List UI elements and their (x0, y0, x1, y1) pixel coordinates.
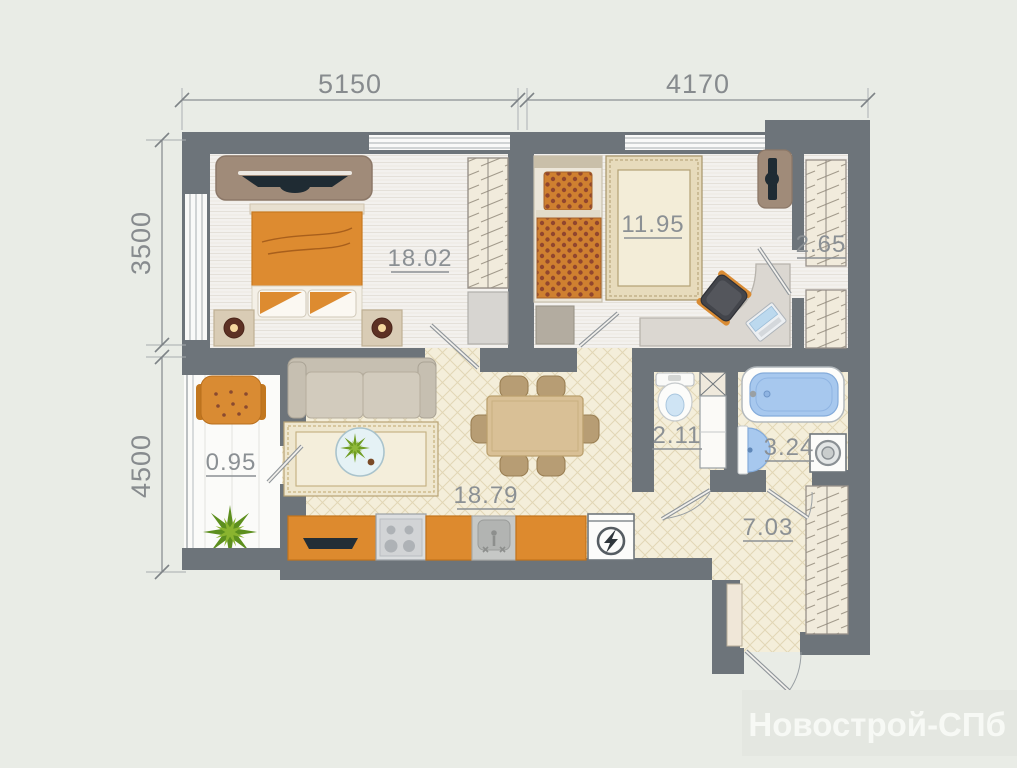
wall-tv (758, 150, 792, 208)
wall-middle-b (480, 348, 577, 372)
dim-top-right: 4170 (666, 69, 730, 99)
room-label-hallway: 7.03 (743, 514, 794, 541)
floor-plan: 0.95 (0, 0, 1017, 768)
counter (516, 516, 586, 560)
kitchen-row (288, 514, 634, 560)
nightstand-right (362, 310, 402, 346)
wall-top-mid (510, 132, 625, 154)
vent-shaft (700, 372, 726, 396)
pillow (258, 290, 306, 317)
sofa (288, 358, 436, 418)
single-bed (534, 156, 602, 302)
bedside-cabinet (536, 306, 574, 344)
wardrobe (468, 158, 508, 288)
dim-top-left: 5150 (318, 69, 382, 99)
nightstand-left (214, 310, 254, 346)
bathtub (742, 367, 844, 422)
wall-top-right (765, 120, 848, 154)
room-label-closet: 2.65 (796, 231, 847, 258)
wall-right (848, 120, 870, 655)
cutting-board (303, 538, 358, 549)
floor-plan-canvas: 0.95 (0, 0, 1017, 768)
stove (376, 514, 426, 560)
dim-left-upper: 3500 (126, 211, 156, 275)
pillow (308, 290, 356, 317)
closet-wardrobe-lower (806, 290, 846, 348)
cabinet (468, 292, 508, 344)
wall-balcony-top (182, 348, 306, 375)
watermark: Новострой-СПб (742, 690, 1017, 756)
room-label-balcony: 0.95 (206, 449, 257, 476)
fridge (588, 514, 634, 560)
wall-closet-lower (792, 298, 804, 348)
wall-hall-bottom-right (800, 632, 870, 655)
room-label-kids-room: 11.95 (621, 211, 684, 238)
tall-cabinet (700, 396, 726, 468)
bedroom-side-window (182, 194, 210, 340)
wall-hall-bottom-left (712, 648, 744, 674)
wall-top-left (182, 132, 369, 154)
wall-living-wc (632, 348, 654, 492)
armchair (196, 376, 266, 424)
bathroom: 3.24 (738, 367, 846, 474)
toilet (656, 373, 694, 421)
room-label-wc: 2.11 (653, 422, 702, 449)
hall-wardrobe (806, 486, 848, 634)
double-bed (250, 204, 364, 320)
watermark-text: Новострой-СПб (748, 706, 1006, 743)
wall-bottom-kitchen (280, 558, 712, 580)
coffee-table (336, 428, 384, 476)
bedroom-window (369, 132, 510, 154)
wall-bedroom-partition (508, 154, 534, 348)
kids-room-window (625, 132, 765, 154)
washing-machine (810, 434, 846, 472)
sink (472, 516, 516, 560)
dim-left-lower: 4500 (126, 434, 156, 498)
tv-console (216, 156, 372, 200)
door-panel (727, 584, 742, 646)
counter (426, 516, 472, 560)
wall-left-corner (182, 132, 210, 194)
room-label-bedroom: 18.02 (387, 245, 452, 272)
wall-balcony-bottom (182, 548, 282, 570)
room-label-bathroom: 3.24 (764, 434, 815, 461)
entrance-door (746, 651, 801, 691)
room-label-living-kitchen: 18.79 (453, 482, 518, 509)
